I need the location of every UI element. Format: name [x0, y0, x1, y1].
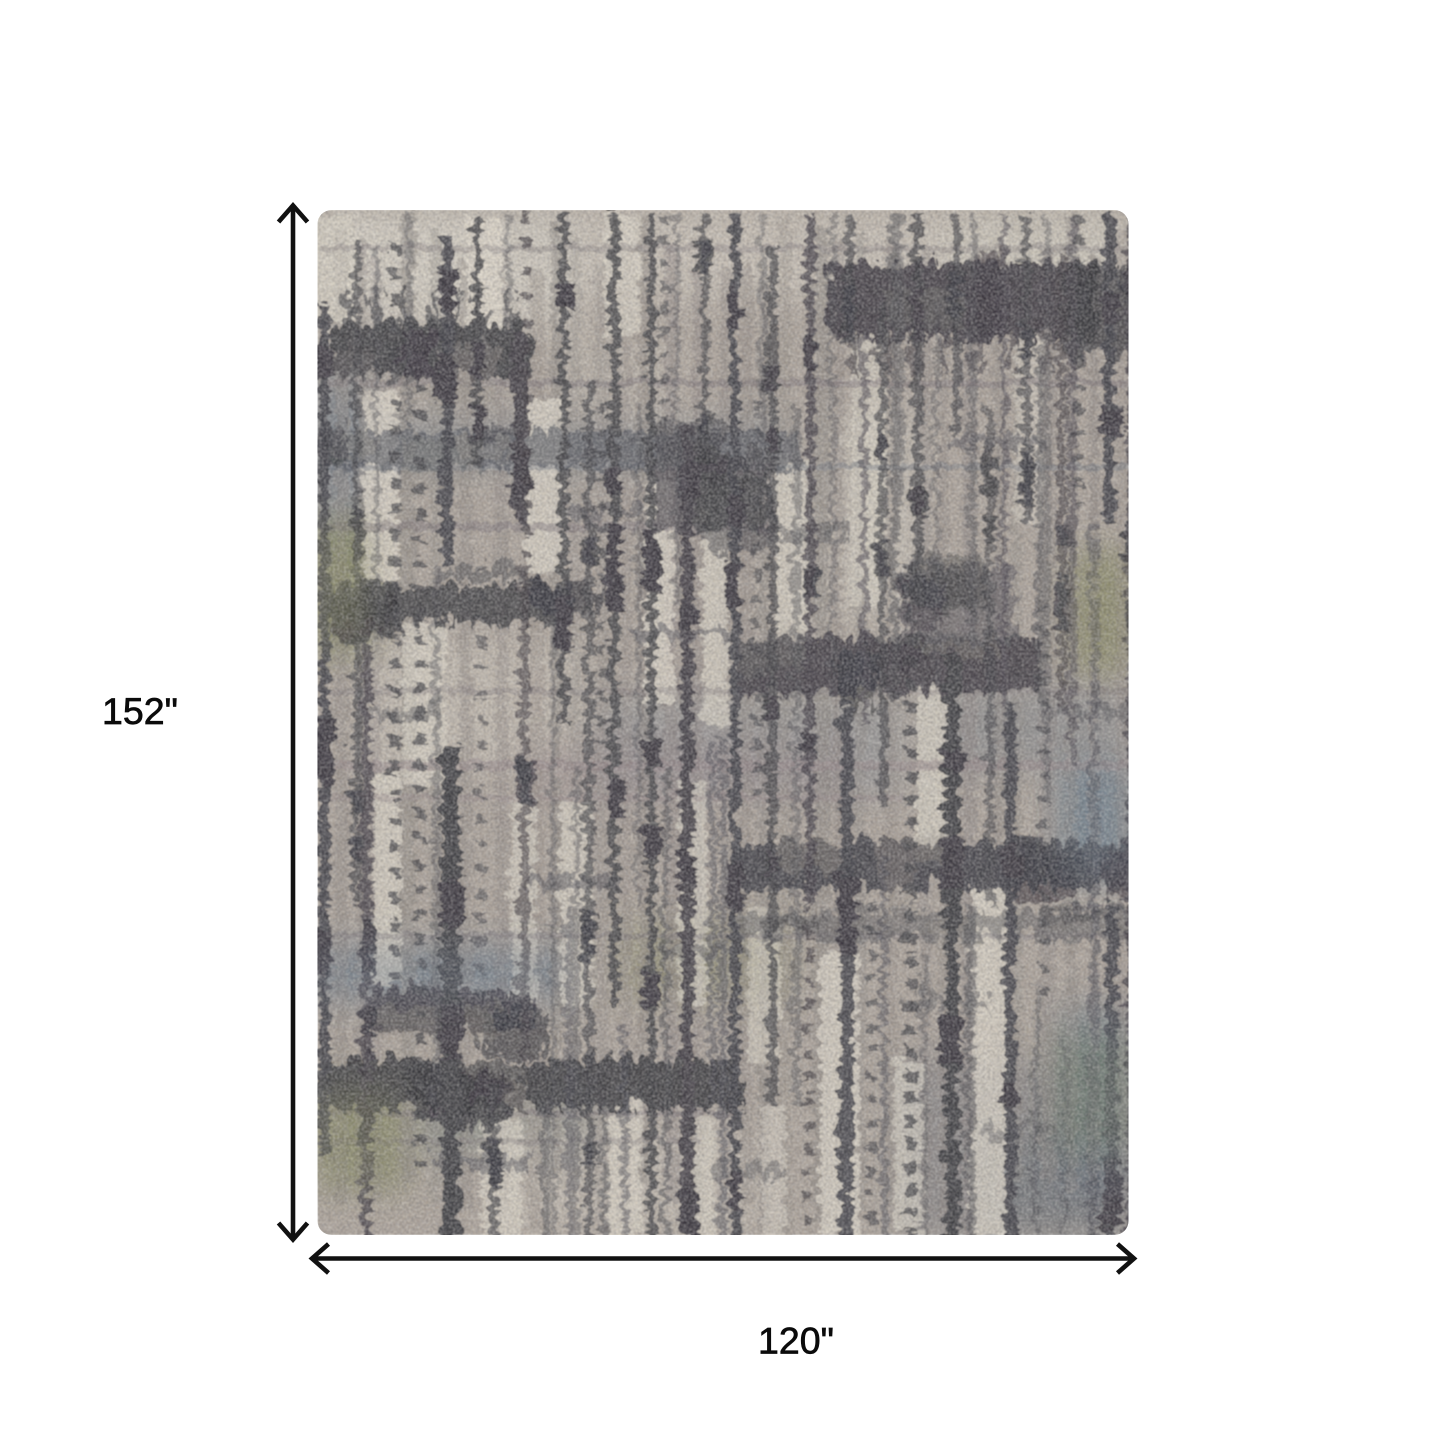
svg-text:120": 120"	[758, 1320, 834, 1362]
svg-text:152": 152"	[102, 690, 178, 732]
